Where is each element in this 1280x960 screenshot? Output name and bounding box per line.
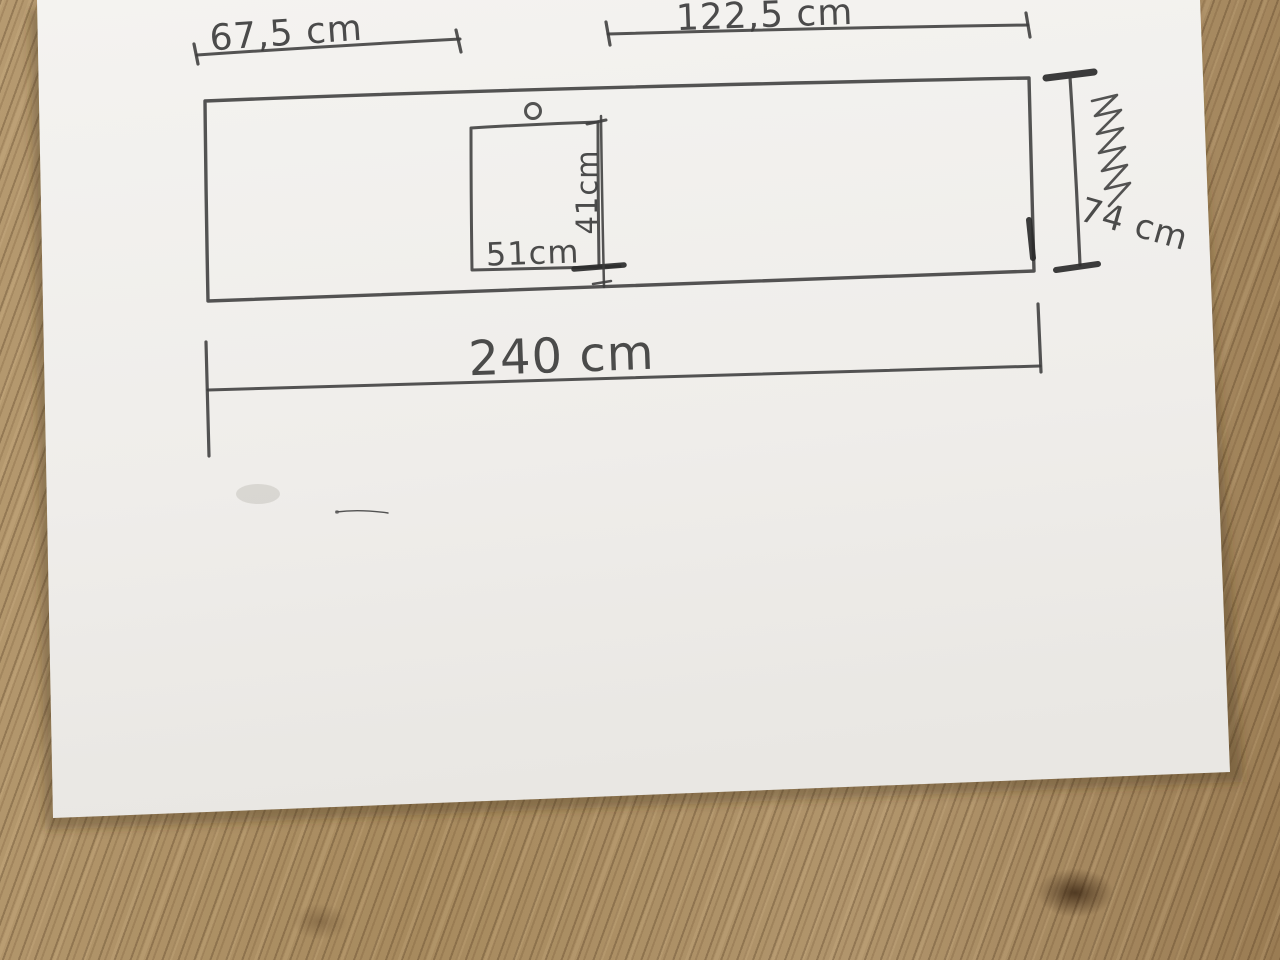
dim-label-total-width: 240 cm xyxy=(468,325,656,387)
pencil-smudge xyxy=(236,484,280,504)
dim-label-cutout-height: 41cm xyxy=(570,149,604,234)
paper-sheet xyxy=(37,0,1230,818)
dim-label-cutout-width: 51cm xyxy=(485,232,580,273)
countertop-sketch-photo: 41cm 51cm 67,5 cm 122,5 cm 74 cm 240 cm xyxy=(0,0,1280,960)
dim-label-top-right-width: 122,5 cm xyxy=(675,0,854,39)
countertop-right-edge-retrace xyxy=(1029,220,1033,258)
pencil-dot xyxy=(335,510,339,514)
